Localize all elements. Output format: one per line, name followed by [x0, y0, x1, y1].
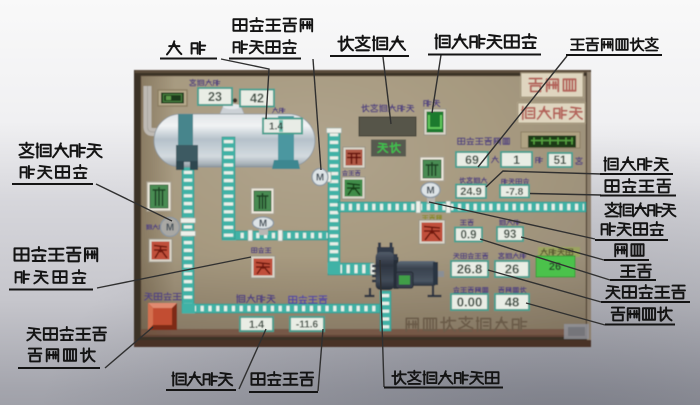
svg-text:M: M: [426, 186, 434, 197]
svg-text:1.4: 1.4: [269, 122, 283, 133]
svg-text:26.8: 26.8: [457, 262, 482, 277]
svg-text:1: 1: [513, 153, 520, 167]
svg-text:69: 69: [465, 153, 479, 167]
svg-text:1.4: 1.4: [249, 319, 265, 331]
svg-text:42: 42: [250, 91, 264, 105]
svg-text:M: M: [166, 223, 174, 234]
svg-text:93: 93: [504, 229, 517, 241]
svg-text:-7.8: -7.8: [506, 187, 524, 198]
svg-text:26: 26: [505, 262, 520, 277]
svg-text:0.00: 0.00: [457, 295, 482, 310]
svg-text:51: 51: [554, 155, 567, 167]
svg-text:0.9: 0.9: [461, 230, 477, 242]
svg-text:23: 23: [208, 90, 222, 104]
svg-text:-11.6: -11.6: [296, 320, 319, 331]
svg-text:M: M: [316, 173, 324, 184]
svg-text:48: 48: [505, 295, 520, 310]
svg-text:24.9: 24.9: [460, 186, 482, 198]
svg-text:M: M: [259, 219, 267, 230]
